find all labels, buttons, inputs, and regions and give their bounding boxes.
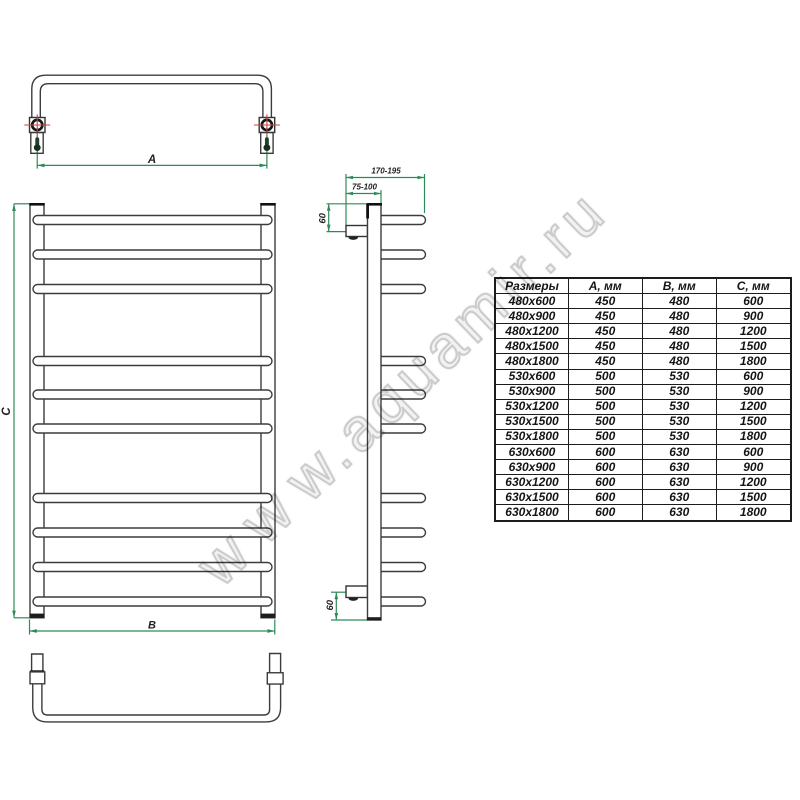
svg-text:A: A <box>147 154 156 166</box>
svg-text:60: 60 <box>325 599 336 610</box>
svg-text:60: 60 <box>318 212 329 223</box>
svg-text:75-100: 75-100 <box>352 183 377 192</box>
svg-text:B: B <box>148 619 156 631</box>
svg-text:170-195: 170-195 <box>371 166 401 175</box>
svg-text:C: C <box>1 407 13 416</box>
